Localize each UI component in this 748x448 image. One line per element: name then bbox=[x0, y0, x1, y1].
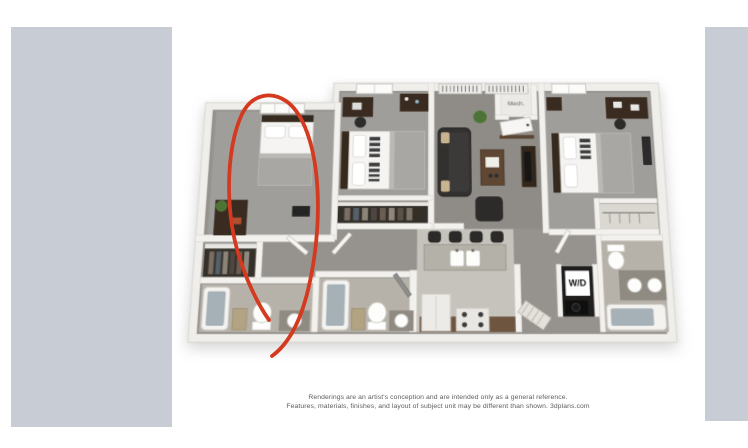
disclaimer-line-1: Renderings are an artist's conception an… bbox=[138, 394, 738, 403]
refrigerator bbox=[422, 294, 451, 331]
screenshot-root: Mech. W/D Renderings are an artist's con… bbox=[0, 0, 748, 448]
bathtub-mid bbox=[322, 280, 350, 330]
wall-art-right bbox=[642, 137, 652, 165]
tv-left bbox=[292, 206, 310, 217]
armchair bbox=[475, 196, 503, 221]
vanity-left bbox=[279, 310, 310, 330]
floorplan-svg: Mech. W/D bbox=[185, 76, 688, 348]
bathtub-left bbox=[201, 287, 230, 330]
window-living-1 bbox=[439, 84, 482, 94]
nightstand-right bbox=[546, 97, 562, 110]
vanity-right bbox=[619, 270, 667, 300]
disclaimer-text: Renderings are an artist's conception an… bbox=[138, 394, 738, 411]
tv-console bbox=[521, 146, 537, 187]
vanity-mid bbox=[389, 310, 414, 330]
toilet-mid bbox=[368, 302, 387, 330]
disclaimer-line-2: Features, materials, finishes, and layou… bbox=[138, 403, 738, 412]
stove bbox=[456, 308, 489, 331]
bathtub-right bbox=[606, 304, 667, 330]
closet-bedroom-left bbox=[203, 244, 257, 280]
dresser-mid bbox=[400, 94, 429, 112]
right-gray-panel bbox=[705, 27, 748, 421]
hamper-mid bbox=[351, 308, 365, 329]
window-bedroom-left bbox=[260, 103, 304, 113]
left-gray-panel bbox=[11, 27, 172, 427]
toilet-left bbox=[252, 302, 272, 330]
closet-bedroom-mid bbox=[337, 202, 428, 223]
bed-mid bbox=[340, 131, 424, 188]
window-living-2 bbox=[485, 84, 528, 94]
window-bedroom-right bbox=[551, 84, 586, 94]
dresser-left bbox=[214, 200, 248, 235]
floorplan-image: Mech. W/D bbox=[185, 76, 688, 348]
hamper-left bbox=[232, 308, 248, 329]
wd-label: W/D bbox=[568, 278, 586, 289]
laundry-closet bbox=[561, 266, 594, 316]
striped-pillows-right bbox=[580, 139, 592, 159]
closet-bedroom-right bbox=[599, 204, 659, 229]
coffee-table bbox=[480, 150, 504, 185]
toilet-right bbox=[607, 245, 625, 270]
bed-left bbox=[258, 115, 314, 185]
window-bedroom-mid bbox=[356, 84, 392, 94]
bed-right bbox=[551, 133, 633, 192]
mech-label: Mech. bbox=[508, 101, 525, 108]
breakfast-bar bbox=[424, 245, 506, 271]
sofa bbox=[438, 128, 471, 197]
